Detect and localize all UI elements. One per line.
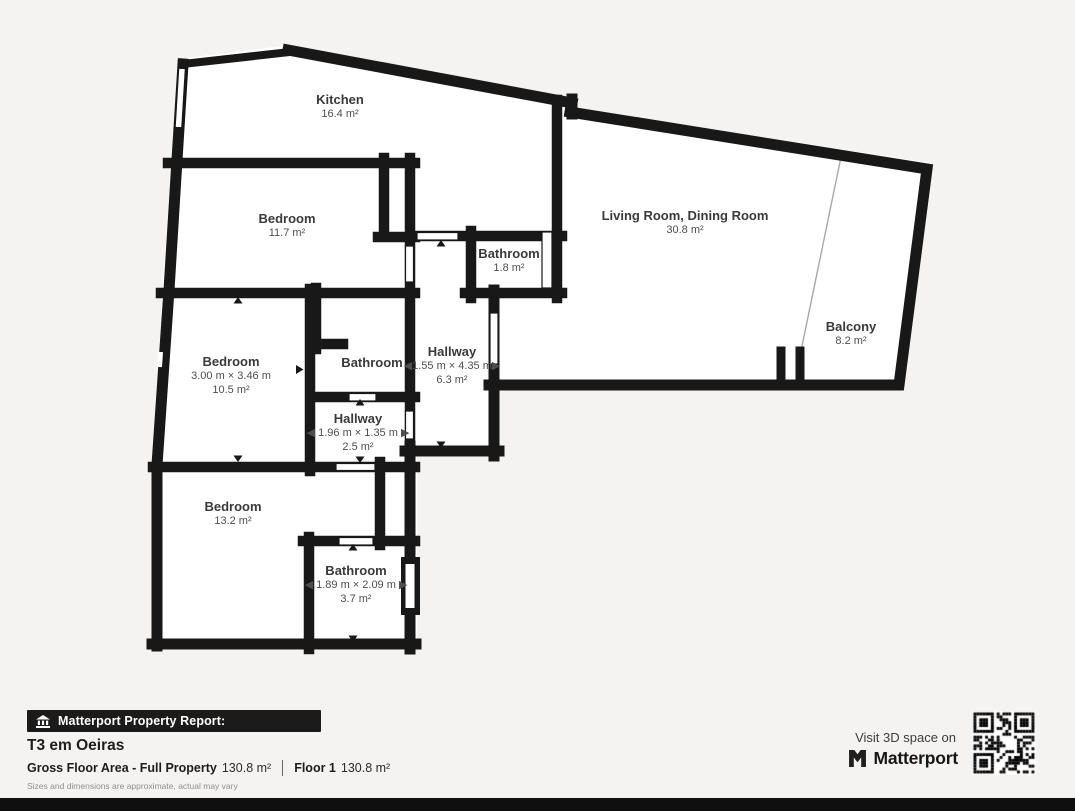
bank-icon xyxy=(36,715,50,728)
stats-divider xyxy=(282,760,283,776)
room-area: 3.7 m² xyxy=(305,592,408,606)
window-bathroom-small xyxy=(542,232,552,288)
qr-code xyxy=(972,711,1036,775)
matterport-m-icon xyxy=(848,749,867,768)
room-area: 8.2 m² xyxy=(826,334,877,348)
room-label-balcony: Balcony 8.2 m² xyxy=(826,319,877,348)
room-area: 2.5 m² xyxy=(307,440,410,454)
room-label-hallway-small: Hallway ◀ 1.96 m × 1.35 m ▶ 2.5 m² xyxy=(307,411,410,454)
report-badge: Matterport Property Report: xyxy=(27,710,321,732)
floor-area xyxy=(151,45,931,650)
room-label-living-dining: Living Room, Dining Room 30.8 m² xyxy=(602,208,769,237)
door-bathroom-suite xyxy=(339,538,373,546)
room-area: 6.3 m² xyxy=(404,373,501,387)
floor-label: Floor 1 xyxy=(294,761,336,775)
disclaimer-text: Sizes and dimensions are approximate, ac… xyxy=(27,781,238,791)
room-name: Balcony xyxy=(826,319,877,334)
room-label-hallway-main: Hallway ◀1.55 m × 4.35 m▶ 6.3 m² xyxy=(404,344,501,387)
floor-plan xyxy=(0,0,1075,811)
bottom-bar xyxy=(0,798,1075,811)
room-area: 1.8 m² xyxy=(478,261,539,275)
room-name: Bathroom xyxy=(478,246,539,261)
floor-value: 130.8 m² xyxy=(341,761,390,775)
room-name: Bedroom xyxy=(204,499,261,514)
window-kitchen xyxy=(179,69,183,127)
property-report-page: Kitchen 16.4 m² Bedroom 11.7 m² Bathroom… xyxy=(0,0,1075,811)
visit-3d-text: Visit 3D space on xyxy=(855,730,956,745)
report-badge-label: Matterport Property Report: xyxy=(58,714,225,728)
room-label-bedroom-2: Bedroom 3.00 m × 3.46 m 10.5 m² xyxy=(191,354,271,397)
room-area: 11.7 m² xyxy=(258,226,315,240)
door-kitchen-hallway xyxy=(417,233,458,241)
matterport-logo: Matterport xyxy=(848,748,958,769)
gross-area-label: Gross Floor Area - Full Property xyxy=(27,761,217,775)
room-dimensions: ◀ 1.96 m × 1.35 m ▶ xyxy=(307,426,410,440)
room-area: 10.5 m² xyxy=(191,383,271,397)
room-label-kitchen: Kitchen 16.4 m² xyxy=(316,92,364,121)
room-area: 13.2 m² xyxy=(204,514,261,528)
room-name: Bedroom xyxy=(258,211,315,226)
door-bathroom-mid xyxy=(349,394,376,402)
area-stats: Gross Floor Area - Full Property 130.8 m… xyxy=(27,760,390,776)
room-label-bedroom-3: Bedroom 13.2 m² xyxy=(204,499,261,528)
room-name: Hallway xyxy=(404,344,501,359)
room-name: Bathroom xyxy=(305,563,408,578)
gross-area-value: 130.8 m² xyxy=(222,761,271,775)
room-name: Kitchen xyxy=(316,92,364,107)
room-name: Bathroom xyxy=(341,355,402,370)
room-label-bathroom-mid: Bathroom xyxy=(341,355,402,370)
room-dimensions: 3.00 m × 3.46 m xyxy=(191,369,271,383)
room-dimensions: ◀1.55 m × 4.35 m▶ xyxy=(404,359,501,373)
room-name: Living Room, Dining Room xyxy=(602,208,769,223)
door-bedroom1 xyxy=(406,246,414,282)
room-name: Hallway xyxy=(307,411,410,426)
room-dimensions: ◀ 1.89 m × 2.09 m ▶ xyxy=(305,578,408,592)
room-label-bedroom-1: Bedroom 11.7 m² xyxy=(258,211,315,240)
brand-name: Matterport xyxy=(873,748,958,769)
window-bedroom2 xyxy=(160,352,161,367)
room-label-bathroom-suite: Bathroom ◀ 1.89 m × 2.09 m ▶ 3.7 m² xyxy=(305,563,408,606)
property-title: T3 em Oeiras xyxy=(27,737,124,755)
door-bedroom3 xyxy=(336,464,375,471)
room-name: Bedroom xyxy=(191,354,271,369)
room-area: 16.4 m² xyxy=(316,107,364,121)
room-label-bathroom-small: Bathroom 1.8 m² xyxy=(478,246,539,275)
room-area: 30.8 m² xyxy=(602,223,769,237)
